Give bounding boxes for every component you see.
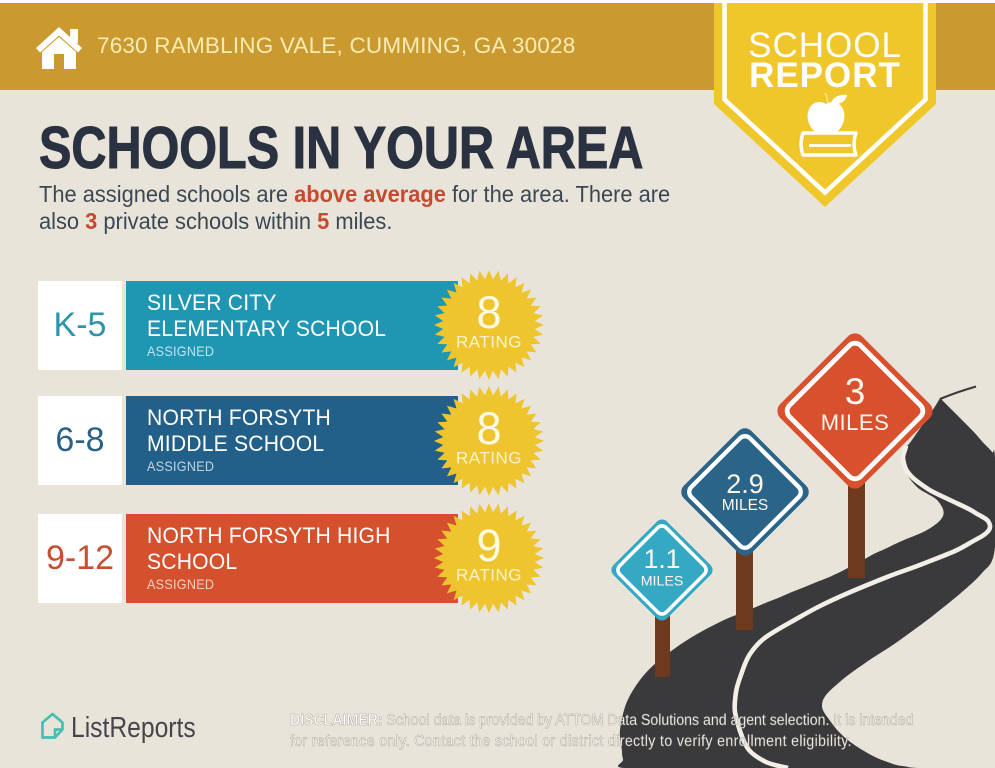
svg-text:RATING: RATING: [456, 566, 522, 585]
svg-text:3: 3: [845, 371, 866, 412]
svg-text:8: 8: [476, 287, 501, 338]
svg-text:MILES: MILES: [722, 497, 769, 514]
svg-text:MILES: MILES: [821, 410, 890, 435]
svg-text:REPORT: REPORT: [749, 56, 901, 95]
svg-text:RATING: RATING: [456, 333, 522, 352]
svg-text:2.9: 2.9: [726, 469, 764, 499]
svg-text:MILES: MILES: [641, 574, 684, 590]
svg-text:9: 9: [476, 520, 501, 571]
svg-text:8: 8: [476, 403, 501, 454]
svg-text:RATING: RATING: [456, 449, 522, 468]
